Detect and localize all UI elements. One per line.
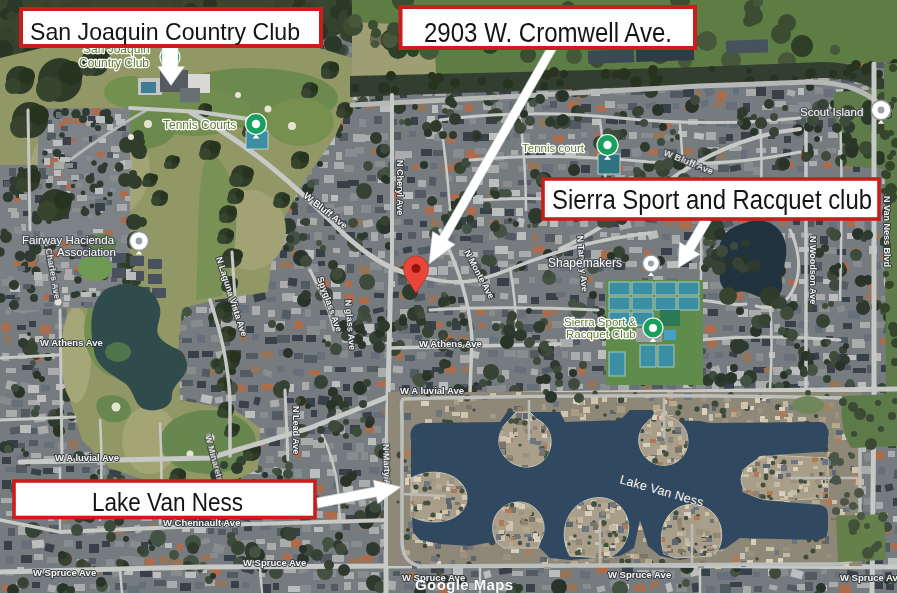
svg-text:Association: Association: [57, 246, 116, 258]
svg-text:Country Club: Country Club: [79, 56, 149, 70]
svg-text:W Spruce Ave: W Spruce Ave: [243, 557, 306, 568]
svg-text:Scout Island: Scout Island: [800, 106, 863, 118]
svg-text:Google Maps: Google Maps: [415, 576, 514, 593]
svg-text:Fairway Hacienda: Fairway Hacienda: [22, 234, 115, 246]
svg-text:N Cheryl Ave: N Cheryl Ave: [395, 160, 405, 215]
svg-text:2903 W. Cromwell Ave.: 2903 W. Cromwell Ave.: [424, 18, 672, 48]
svg-text:Lake Van Ness: Lake Van Ness: [92, 488, 243, 516]
svg-text:Racquet Club: Racquet Club: [566, 328, 636, 340]
svg-text:Sierra Sport &: Sierra Sport &: [564, 316, 637, 328]
svg-text:W Spruce Ave: W Spruce Ave: [608, 569, 671, 580]
svg-text:Shapemakers: Shapemakers: [548, 256, 622, 270]
svg-text:N Lead Ave: N Lead Ave: [291, 406, 301, 454]
svg-text:Tennis Courts: Tennis Courts: [163, 118, 236, 132]
svg-text:W A luvial Ave: W A luvial Ave: [400, 385, 464, 396]
svg-text:Sierra Sport and Racquet club: Sierra Sport and Racquet club: [552, 185, 872, 215]
svg-text:W A luvial Ave: W A luvial Ave: [55, 452, 119, 463]
svg-text:N Van Ness Blvd: N Van Ness Blvd: [882, 196, 892, 267]
svg-text:Tennis court: Tennis court: [522, 142, 585, 154]
svg-text:San Joaquin Country Club: San Joaquin Country Club: [30, 18, 300, 45]
svg-text:W Spruce Ave: W Spruce Ave: [840, 572, 897, 583]
svg-text:N Woodson Ave: N Woodson Ave: [808, 236, 818, 304]
svg-text:W Athens Ave: W Athens Ave: [40, 337, 103, 348]
svg-text:W Spruce Ave: W Spruce Ave: [33, 567, 96, 578]
svg-text:W Athens Ave: W Athens Ave: [419, 338, 482, 349]
